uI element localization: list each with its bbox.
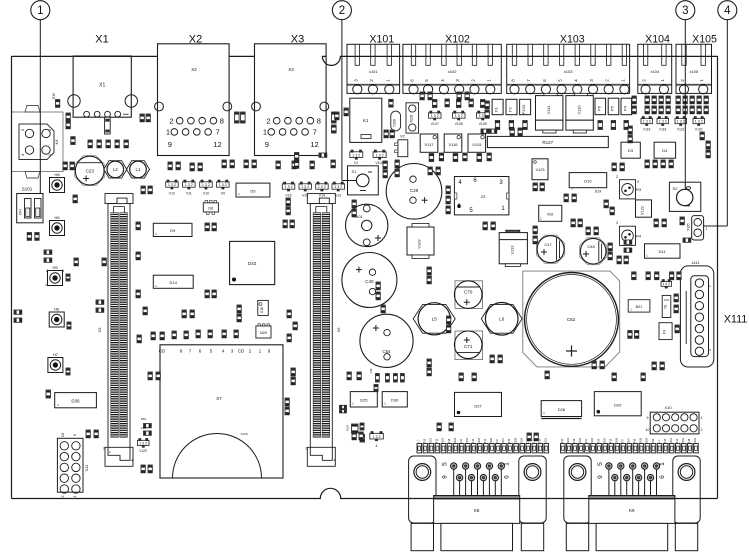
svg-text:12: 12 [310, 140, 318, 149]
svg-text:D28: D28 [558, 407, 566, 412]
svg-text:H7: H7 [53, 352, 59, 357]
svg-text:R109: R109 [519, 437, 523, 444]
svg-text:1 3 2: 1 3 2 [373, 435, 381, 439]
svg-text:D4: D4 [662, 148, 668, 153]
svg-text:R109: R109 [645, 437, 649, 444]
svg-text:1 3 2: 1 3 2 [376, 153, 384, 157]
svg-text:X111: X111 [724, 314, 748, 326]
svg-text:1 3 2: 1 3 2 [139, 441, 147, 445]
svg-text:D25: D25 [360, 398, 368, 403]
svg-text:9: 9 [597, 475, 604, 479]
svg-text:K4: K4 [54, 139, 59, 145]
svg-text:X10: X10 [664, 405, 672, 410]
svg-text:H5: H5 [52, 265, 58, 270]
svg-text:4: 4 [376, 444, 378, 448]
svg-text:V116: V116 [448, 142, 458, 147]
svg-text:F1: F1 [494, 106, 499, 111]
svg-text:H6: H6 [54, 307, 60, 312]
svg-text:R126: R126 [409, 114, 413, 122]
svg-text:9: 9 [442, 475, 449, 479]
svg-text:C94: C94 [651, 438, 655, 443]
svg-text:R101: R101 [669, 437, 673, 444]
svg-text:D11: D11 [659, 249, 667, 254]
svg-text:1 3 2: 1 3 2 [659, 120, 667, 124]
svg-text:D14: D14 [170, 280, 178, 285]
svg-text:V15: V15 [302, 194, 308, 198]
svg-text:9: 9 [265, 140, 269, 149]
svg-text:X105: X105 [687, 223, 691, 231]
svg-text:V11: V11 [186, 192, 192, 196]
svg-text:2: 2 [46, 269, 48, 273]
svg-text:1: 1 [166, 128, 170, 137]
svg-text:V113: V113 [510, 245, 515, 255]
svg-text:F103: F103 [521, 104, 526, 114]
svg-text:9: 9 [647, 416, 649, 420]
svg-text:X2: X2 [191, 67, 197, 72]
svg-text:F16: F16 [633, 438, 637, 443]
svg-text:4: 4 [131, 458, 133, 462]
svg-text:H8: H8 [54, 172, 60, 177]
svg-text:F12: F12 [675, 438, 679, 443]
svg-text:F2: F2 [508, 106, 513, 111]
svg-text:F3: F3 [663, 330, 667, 334]
svg-text:V129: V129 [139, 449, 147, 453]
svg-text:R101: R101 [429, 437, 433, 444]
svg-text:V123: V123 [536, 168, 545, 172]
svg-text:1: 1 [659, 462, 666, 466]
svg-text:F12: F12 [435, 438, 439, 443]
svg-text:x104: x104 [650, 69, 659, 74]
svg-text:V16: V16 [285, 194, 291, 198]
svg-text:V10: V10 [203, 192, 209, 196]
svg-text:V14: V14 [319, 194, 325, 198]
svg-text:V111: V111 [546, 105, 551, 115]
svg-text:7: 7 [313, 128, 317, 137]
svg-text:V122: V122 [641, 206, 645, 215]
svg-text:S101: S101 [22, 187, 33, 192]
svg-text:2: 2 [616, 175, 618, 179]
svg-text:10: 10 [60, 432, 65, 437]
svg-text:X11: X11 [84, 464, 89, 472]
svg-text:D42: D42 [248, 261, 257, 266]
svg-text:x105: x105 [689, 69, 698, 74]
svg-text:F14: F14 [608, 438, 612, 443]
svg-text:4: 4 [333, 458, 335, 462]
svg-text:R102: R102 [566, 437, 570, 444]
svg-text:V104: V104 [375, 161, 383, 165]
svg-text:12: 12 [213, 140, 221, 149]
svg-text:Z3: Z3 [481, 194, 486, 199]
svg-text:D36: D36 [71, 399, 80, 404]
svg-text:V118: V118 [659, 128, 666, 132]
svg-text:V110: V110 [576, 105, 581, 115]
svg-text:K1: K1 [363, 118, 369, 123]
svg-text:R106: R106 [489, 437, 493, 444]
svg-text:S1: S1 [352, 169, 358, 174]
svg-text:3: 3 [616, 221, 618, 225]
svg-text:4: 4 [724, 5, 731, 17]
svg-text:F18: F18 [687, 438, 691, 443]
svg-text:F11: F11 [459, 438, 463, 443]
svg-text:3: 3 [682, 5, 688, 17]
svg-text:1 3 2: 1 3 2 [455, 114, 463, 118]
svg-text:F15: F15 [423, 438, 427, 443]
svg-text:1 3 2: 1 3 2 [431, 114, 439, 118]
svg-text:P6: P6 [596, 105, 601, 111]
svg-text:R104: R104 [465, 437, 469, 444]
svg-text:1 3 2: 1 3 2 [219, 183, 227, 187]
svg-text:B21: B21 [636, 305, 643, 309]
svg-text:V105: V105 [479, 122, 487, 126]
svg-text:V13: V13 [335, 194, 341, 198]
svg-text:1 3 2: 1 3 2 [168, 183, 176, 187]
svg-text:C70: C70 [464, 290, 473, 295]
svg-text:X104: X104 [645, 34, 670, 46]
svg-text:F11: F11 [584, 438, 588, 443]
svg-text:C47: C47 [544, 242, 552, 247]
svg-text:F13: F13 [471, 438, 475, 443]
svg-text:ON: ON [18, 209, 23, 215]
svg-text:X7: X7 [216, 396, 222, 401]
svg-text:C90: C90 [141, 426, 147, 430]
svg-text:X5: X5 [97, 327, 102, 333]
svg-text:V117: V117 [424, 142, 434, 147]
svg-text:R108: R108 [513, 437, 517, 444]
svg-text:R125: R125 [346, 424, 350, 431]
svg-text:CD: CD [238, 349, 245, 354]
svg-text:X102: X102 [445, 34, 470, 46]
svg-text:V115: V115 [472, 142, 482, 147]
svg-text:Y8: Y8 [664, 305, 668, 309]
svg-text:1 3 2: 1 3 2 [677, 120, 685, 124]
svg-text:P5: P5 [610, 105, 615, 111]
svg-text:V2: V2 [400, 135, 405, 139]
svg-text:V108: V108 [393, 119, 397, 127]
svg-text:6: 6 [504, 475, 511, 479]
svg-text:C71: C71 [464, 344, 473, 349]
svg-text:F15: F15 [663, 438, 667, 443]
svg-text:1 3 2: 1 3 2 [202, 183, 210, 187]
svg-text:K8: K8 [474, 508, 480, 513]
svg-text:1 3 2: 1 3 2 [352, 153, 360, 157]
svg-text:2: 2 [305, 446, 307, 450]
svg-text:X6: X6 [336, 327, 341, 333]
svg-text:F17: F17 [621, 438, 625, 443]
svg-text:x101: x101 [369, 69, 378, 74]
svg-text:10: 10 [646, 428, 650, 432]
svg-text:F18: F18 [572, 438, 576, 443]
svg-text:C62: C62 [567, 317, 576, 322]
svg-text:1 3 2: 1 3 2 [695, 120, 703, 124]
svg-text:V119: V119 [643, 128, 650, 132]
svg-text:1 3 2: 1 3 2 [318, 185, 326, 189]
svg-text:V121: V121 [677, 128, 685, 132]
svg-text:D27: D27 [474, 404, 482, 409]
svg-text:D9: D9 [170, 228, 176, 233]
svg-text:C23: C23 [86, 169, 95, 174]
svg-text:V102: V102 [417, 239, 422, 249]
svg-text:X105: X105 [692, 34, 717, 46]
svg-text:X1: X1 [99, 83, 105, 89]
svg-text:F12: F12 [560, 438, 564, 443]
svg-text:R103: R103 [453, 437, 457, 444]
svg-text:x103: x103 [564, 69, 573, 74]
svg-text:R15: R15 [52, 93, 56, 99]
svg-text:C96: C96 [369, 368, 373, 373]
svg-text:C54: C54 [382, 349, 391, 354]
svg-text:x111: x111 [691, 260, 700, 265]
svg-text:V9: V9 [221, 192, 225, 196]
svg-text:C28: C28 [410, 188, 419, 193]
svg-text:D30: D30 [391, 398, 399, 403]
svg-text:R105: R105 [477, 437, 481, 444]
svg-text:C40: C40 [365, 279, 374, 284]
svg-text:3: 3 [62, 269, 64, 273]
svg-text:x102: x102 [448, 69, 457, 74]
svg-text:R107: R107 [627, 437, 631, 444]
svg-text:8: 8 [317, 116, 321, 125]
svg-text:R107: R107 [501, 437, 505, 444]
svg-text:F18: F18 [447, 438, 451, 443]
svg-text:R103: R103 [578, 437, 582, 444]
svg-text:D10: D10 [584, 179, 592, 184]
svg-text:L6: L6 [499, 317, 505, 322]
svg-text:D5: D5 [250, 188, 256, 193]
svg-text:P4: P4 [622, 105, 627, 111]
svg-text:R127: R127 [542, 140, 553, 145]
svg-text:1: 1 [263, 128, 267, 137]
svg-text:R103: R103 [693, 437, 697, 444]
svg-text:2: 2 [103, 446, 105, 450]
svg-text:D19: D19 [595, 190, 601, 194]
svg-text:1: 1 [504, 462, 511, 466]
svg-text:N20: N20 [260, 331, 267, 335]
svg-text:R101: R101 [544, 437, 548, 444]
svg-text:1 3 2: 1 3 2 [301, 185, 309, 189]
svg-text:7: 7 [216, 128, 220, 137]
svg-text:R102: R102 [441, 437, 445, 444]
svg-text:K9: K9 [629, 508, 635, 513]
svg-text:5: 5 [597, 462, 604, 466]
svg-text:R102: R102 [681, 437, 685, 444]
svg-text:1: 1 [37, 5, 43, 17]
svg-text:D18: D18 [260, 307, 264, 313]
svg-text:S2: S2 [673, 186, 679, 191]
svg-text:1: 1 [701, 416, 703, 420]
svg-text:F14: F14 [483, 438, 487, 443]
svg-text:1: 1 [706, 227, 708, 231]
svg-text:V107: V107 [431, 122, 439, 126]
svg-text:6: 6 [659, 475, 666, 479]
svg-text:L5: L5 [432, 317, 438, 322]
svg-text:1 3 2: 1 3 2 [285, 185, 293, 189]
svg-text:1 3 2: 1 3 2 [662, 282, 670, 286]
svg-text:V120: V120 [695, 128, 703, 132]
svg-text:X103: X103 [560, 34, 585, 46]
svg-text:R104: R104 [590, 437, 594, 444]
svg-text:X1: X1 [95, 34, 108, 46]
svg-text:9: 9 [168, 140, 172, 149]
svg-text:X101: X101 [369, 34, 394, 46]
svg-text:V12: V12 [169, 192, 175, 196]
svg-text:R105: R105 [602, 437, 606, 444]
svg-text:C48: C48 [587, 244, 595, 249]
svg-text:L2: L2 [113, 167, 119, 172]
svg-text:2: 2 [339, 5, 345, 17]
svg-text:R108: R108 [639, 437, 643, 444]
svg-text:1 3 2: 1 3 2 [643, 120, 651, 124]
svg-text:R91: R91 [141, 417, 147, 421]
svg-text:2: 2 [266, 116, 270, 125]
svg-text:X3: X3 [288, 67, 294, 72]
svg-text:2: 2 [169, 116, 173, 125]
svg-text:1: 1 [45, 283, 47, 287]
svg-text:V129: V129 [240, 432, 247, 436]
svg-text:L1: L1 [135, 167, 141, 172]
svg-text:V1: V1 [354, 161, 358, 165]
svg-text:R3: R3 [636, 187, 642, 192]
svg-text:5: 5 [442, 462, 449, 466]
svg-text:F13: F13 [596, 438, 600, 443]
svg-text:1 3 2: 1 3 2 [334, 185, 342, 189]
svg-text:R4: R4 [636, 233, 642, 238]
svg-text:D6: D6 [208, 207, 213, 211]
svg-text:D29: D29 [614, 403, 622, 408]
svg-text:2: 2 [701, 428, 703, 432]
svg-text:CD: CD [159, 349, 166, 354]
svg-text:3: 3 [637, 180, 639, 184]
svg-text:D3: D3 [628, 148, 634, 153]
svg-text:F17: F17 [495, 438, 499, 443]
svg-text:1 3 2: 1 3 2 [185, 183, 193, 187]
svg-text:R106: R106 [615, 437, 619, 444]
svg-text:8: 8 [220, 116, 224, 125]
svg-text:V106: V106 [455, 122, 463, 126]
svg-text:H6: H6 [54, 215, 60, 220]
svg-text:M3: M3 [547, 212, 553, 217]
svg-text:F16: F16 [507, 438, 511, 443]
